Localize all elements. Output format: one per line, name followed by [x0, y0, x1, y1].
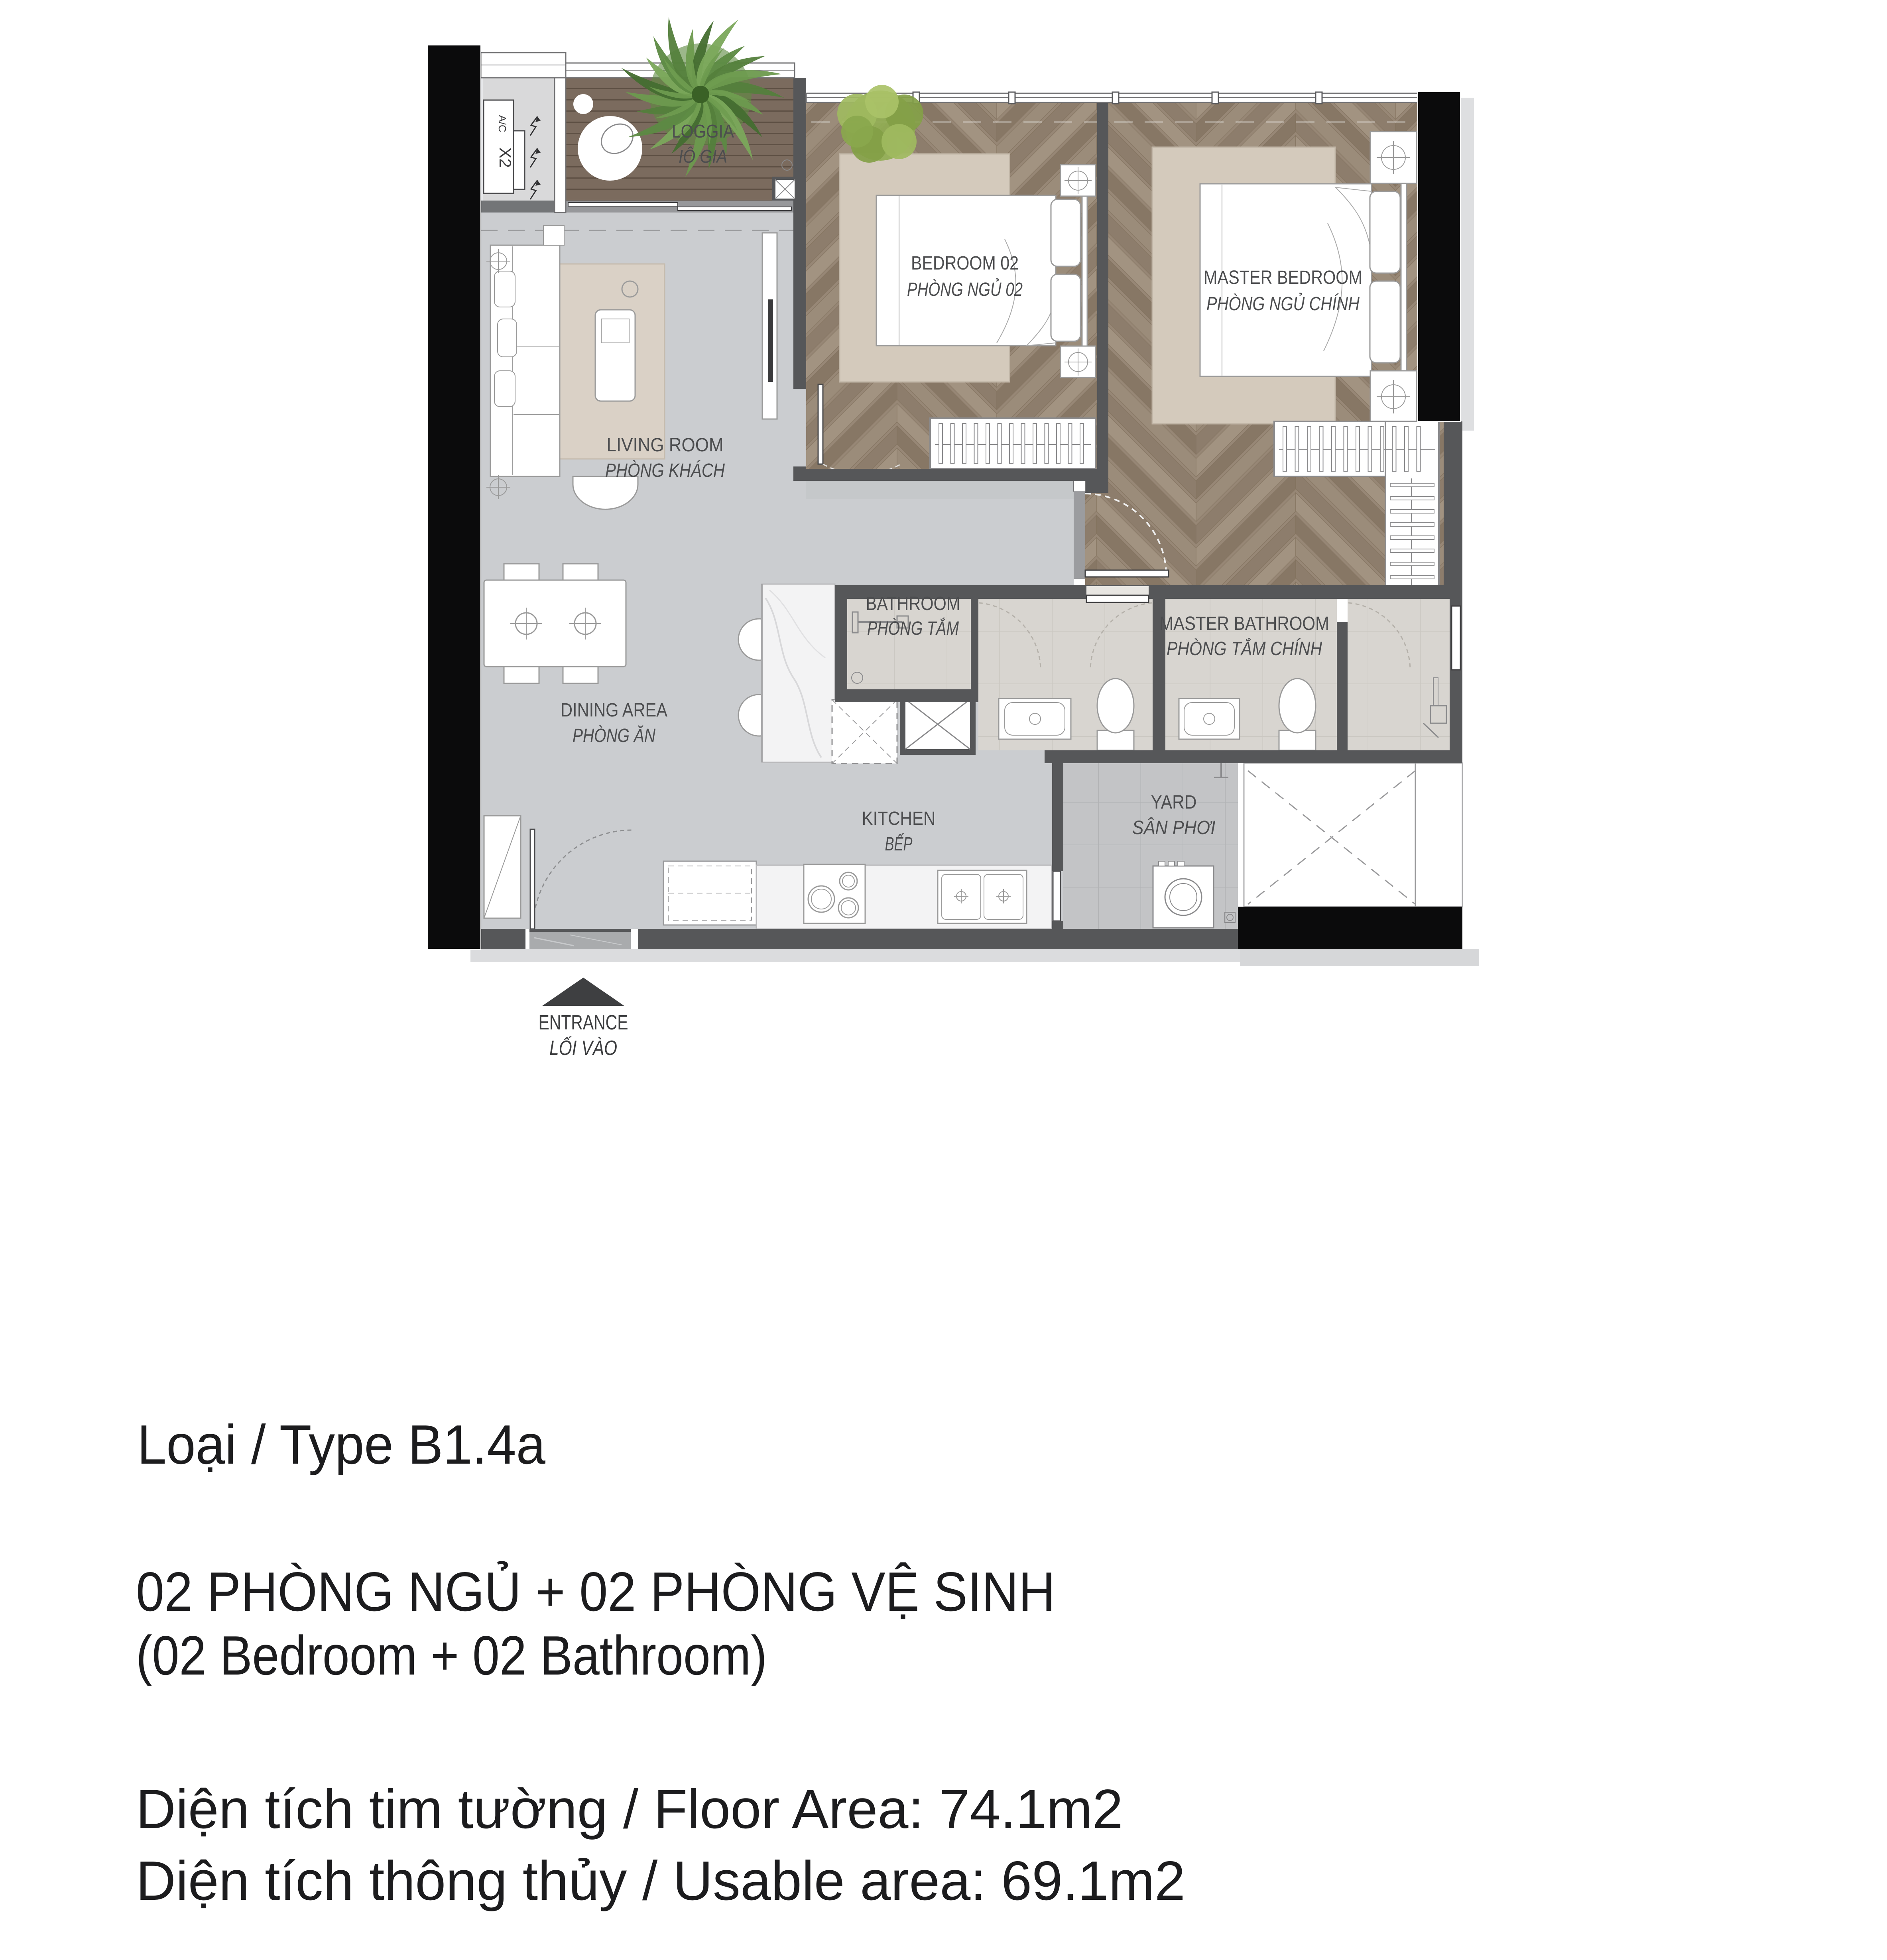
svg-text:MASTER BEDROOM: MASTER BEDROOM — [1204, 267, 1362, 288]
svg-text:LOGGIA: LOGGIA — [672, 121, 734, 142]
svg-text:PHÒNG TẮM CHÍNH: PHÒNG TẮM CHÍNH — [1167, 638, 1322, 659]
svg-text:IÔ GIA: IÔ GIA — [679, 146, 727, 167]
svg-text:PHÒNG TẮM: PHÒNG TẮM — [867, 617, 959, 639]
svg-text:PHÒNG KHÁCH: PHÒNG KHÁCH — [605, 460, 725, 481]
svg-text:Diện tích tim tường / Floor Ar: Diện tích tim tường / Floor Area: 74.1m2 — [136, 1778, 1123, 1840]
svg-text:(02 Bedroom + 02 Bathroom): (02 Bedroom + 02 Bathroom) — [136, 1625, 767, 1686]
svg-text:LỐI VÀO: LỐI VÀO — [549, 1036, 617, 1060]
svg-text:BẾP: BẾP — [885, 833, 913, 855]
svg-text:ENTRANCE: ENTRANCE — [539, 1011, 628, 1034]
svg-text:DINING AREA: DINING AREA — [561, 700, 667, 721]
svg-text:YARD: YARD — [1151, 792, 1197, 813]
svg-text:Loại / Type B1.4a: Loại / Type B1.4a — [137, 1414, 546, 1476]
svg-text:X2: X2 — [496, 147, 515, 167]
svg-text:Diện tích thông thủy / Usable: Diện tích thông thủy / Usable area: 69.1… — [136, 1850, 1185, 1912]
svg-text:PHÒNG NGỦ CHÍNH: PHÒNG NGỦ CHÍNH — [1206, 292, 1360, 315]
svg-text:PHÒNG NGỦ 02: PHÒNG NGỦ 02 — [907, 278, 1023, 300]
svg-text:KITCHEN: KITCHEN — [862, 808, 936, 829]
svg-text:02 PHÒNG NGỦ + 02 PHÒNG VỆ SIN: 02 PHÒNG NGỦ + 02 PHÒNG VỆ SINH — [136, 1561, 1055, 1623]
svg-text:SÂN PHƠI: SÂN PHƠI — [1132, 817, 1216, 838]
svg-text:MASTER BATHROOM: MASTER BATHROOM — [1159, 613, 1329, 634]
svg-text:PHÒNG ĂN: PHÒNG ĂN — [573, 725, 655, 746]
svg-text:BEDROOM 02: BEDROOM 02 — [911, 253, 1019, 274]
svg-text:LIVING ROOM: LIVING ROOM — [607, 435, 724, 456]
svg-text:BATHROOM: BATHROOM — [866, 593, 960, 614]
svg-text:A/C: A/C — [496, 115, 508, 132]
